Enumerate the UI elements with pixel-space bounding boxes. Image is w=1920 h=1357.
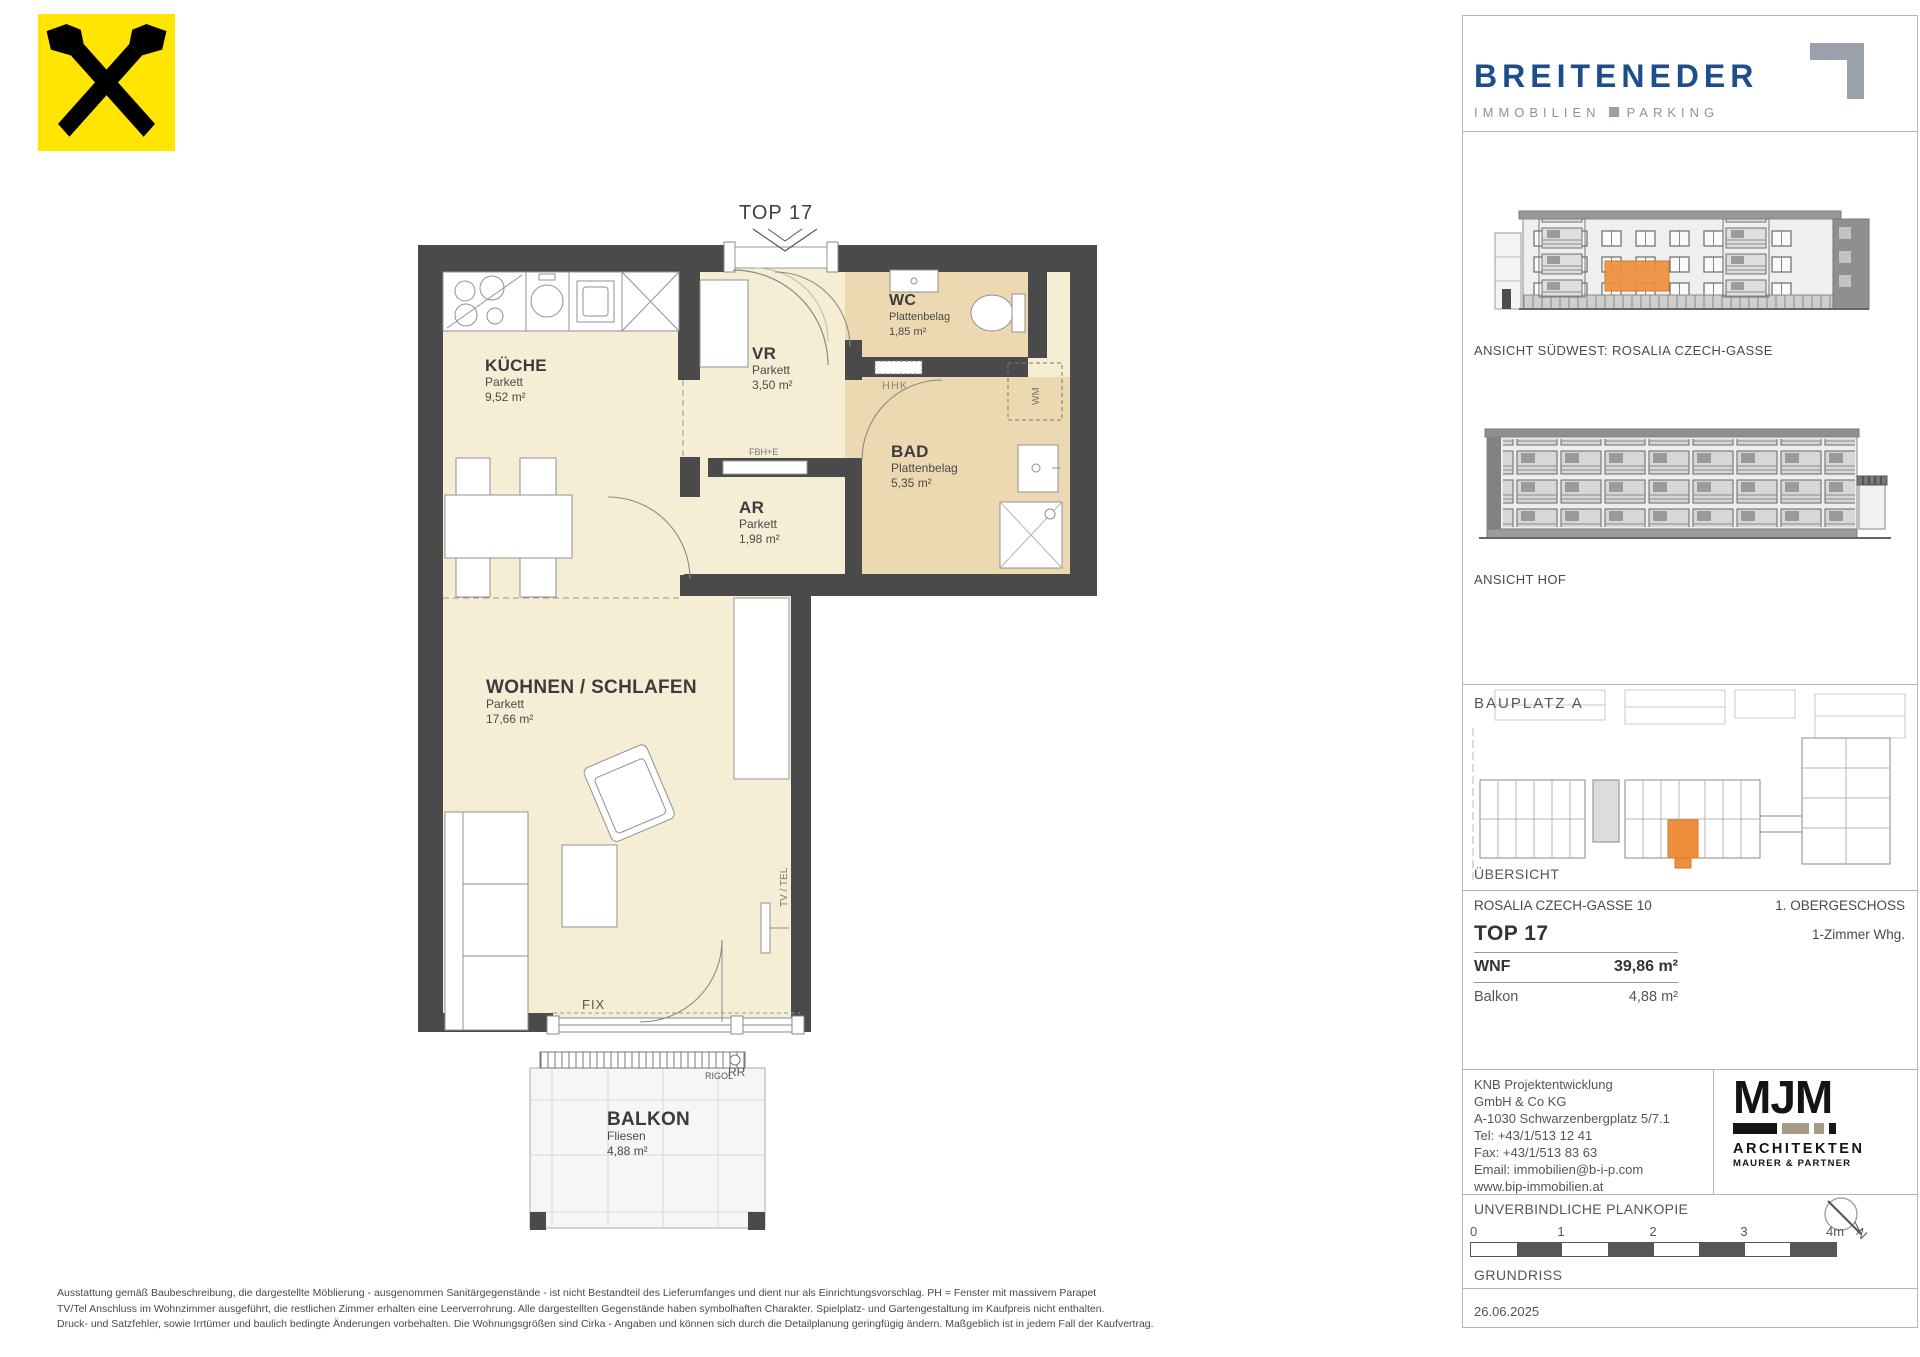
room-label-kueche: KÜCHE Parkett 9,52 m² bbox=[485, 356, 547, 405]
mjm-bar-icon bbox=[1733, 1123, 1893, 1134]
coffee-table bbox=[562, 845, 617, 927]
sofa bbox=[445, 812, 528, 1030]
mjm-bar-segment bbox=[1814, 1123, 1824, 1134]
wnf-value: 39,86 m² bbox=[1614, 958, 1678, 976]
wnf-label: WNF bbox=[1474, 958, 1510, 976]
wnf-row: WNF 39,86 m² bbox=[1474, 958, 1678, 976]
room-label-wohnen: WOHNEN / SCHLAFEN Parkett 17,66 m² bbox=[486, 678, 697, 727]
info-floor: 1. OBERGESCHOSS bbox=[1775, 898, 1905, 913]
disclaimer: Ausstattung gemäß Baubeschreibung, die d… bbox=[57, 1286, 1154, 1333]
disclaimer-line: TV/Tel Anschluss im Wohnzimmer ausgeführ… bbox=[57, 1302, 1154, 1318]
room-label-balkon: BALKON Fliesen 4,88 m² bbox=[607, 1110, 690, 1159]
dining-table bbox=[445, 458, 572, 597]
elevation-southwest-label: ANSICHT SÜDWEST: ROSALIA CZECH-GASSE bbox=[1474, 343, 1773, 358]
ar-door-arc bbox=[608, 497, 690, 579]
developer-line: GmbH & Co KG bbox=[1474, 1093, 1670, 1110]
uebersicht-label: ÜBERSICHT bbox=[1474, 866, 1559, 882]
drawing-type-label: GRUNDRISS bbox=[1474, 1267, 1563, 1283]
divider bbox=[1463, 1288, 1917, 1289]
developer-line: www.bip-immobilien.at bbox=[1474, 1178, 1670, 1195]
scale-tick: 2 bbox=[1638, 1224, 1668, 1239]
window-front bbox=[547, 940, 804, 1034]
elevation-hof-label: ANSICHT HOF bbox=[1474, 572, 1566, 587]
info-rule bbox=[1474, 952, 1678, 953]
scale-tick: 4m bbox=[1815, 1224, 1855, 1239]
bauplatz-label: BAUPLATZ A bbox=[1474, 695, 1584, 712]
balkon-value: 4,88 m² bbox=[1629, 989, 1678, 1005]
tv-board bbox=[761, 903, 789, 953]
elevation-southwest-drawing bbox=[1493, 199, 1873, 324]
room-label-bad: BAD Plattenbelag 5,35 m² bbox=[891, 442, 958, 491]
wardrobe bbox=[734, 598, 789, 779]
armchair bbox=[582, 743, 676, 843]
mjm-bar-segment bbox=[1782, 1123, 1809, 1134]
tagline-square-icon bbox=[1609, 107, 1619, 117]
fbhe-panel bbox=[723, 461, 807, 474]
developer-block: KNB Projektentwicklung GmbH & Co KG A-10… bbox=[1474, 1076, 1670, 1195]
balkon-row: Balkon 4,88 m² bbox=[1474, 989, 1678, 1005]
room-label-ar: AR Parkett 1,98 m² bbox=[739, 498, 780, 547]
wm-label: WM bbox=[1031, 387, 1042, 405]
info-unit: TOP 17 bbox=[1474, 922, 1549, 946]
breiteneder-bracket-icon-vertical bbox=[1847, 43, 1864, 99]
siteplan-drawing bbox=[1465, 688, 1915, 886]
mjm-architekten: ARCHITEKTEN bbox=[1733, 1141, 1893, 1157]
plan-date: 26.06.2025 bbox=[1474, 1304, 1539, 1319]
plankopie-label: UNVERBINDLICHE PLANKOPIE bbox=[1474, 1201, 1688, 1217]
scale-bar bbox=[1470, 1242, 1837, 1257]
developer-line: KNB Projektentwicklung bbox=[1474, 1076, 1670, 1093]
mjm-logo: MJM ARCHITEKTEN MAURER & PARTNER bbox=[1733, 1074, 1893, 1169]
divider bbox=[1463, 131, 1917, 132]
mjm-bar-segment bbox=[1733, 1123, 1777, 1134]
vr-closet bbox=[700, 280, 748, 367]
divider-vertical bbox=[1713, 1069, 1714, 1194]
sidebar: BREITENEDER IMMOBILIENPARKING bbox=[1462, 15, 1918, 1328]
divider bbox=[1463, 684, 1917, 685]
room-boundaries bbox=[443, 380, 683, 598]
tagline-parking: PARKING bbox=[1627, 105, 1720, 120]
developer-line: A-1030 Schwarzenbergplatz 5/7.1 bbox=[1474, 1110, 1670, 1127]
hhk-label: HHK bbox=[882, 380, 908, 392]
breiteneder-wordmark: BREITENEDER bbox=[1474, 58, 1758, 95]
plan-unit-label: TOP 17 bbox=[739, 202, 813, 225]
elevation-hof-drawing bbox=[1471, 419, 1895, 564]
scale-tick: 0 bbox=[1470, 1224, 1477, 1239]
balkon-label: Balkon bbox=[1474, 989, 1518, 1005]
mjm-partner: MAURER & PARTNER bbox=[1733, 1158, 1893, 1169]
disclaimer-line: Ausstattung gemäß Baubeschreibung, die d… bbox=[57, 1286, 1154, 1302]
breiteneder-tagline: IMMOBILIENPARKING bbox=[1474, 105, 1719, 120]
info-rule bbox=[1474, 982, 1678, 983]
scale-tick: 3 bbox=[1729, 1224, 1759, 1239]
divider bbox=[1463, 890, 1917, 891]
fix-label: FIX bbox=[582, 997, 605, 1012]
raiffeisen-gable-cross-icon bbox=[38, 14, 175, 151]
room-label-wc: WC Plattenbelag 1,85 m² bbox=[889, 291, 950, 340]
rr-label: RR bbox=[728, 1065, 745, 1079]
scale-tick: 1 bbox=[1546, 1224, 1576, 1239]
raiffeisen-logo bbox=[38, 14, 175, 151]
fbhe-label: FBH+E bbox=[749, 447, 778, 457]
developer-line: Tel: +43/1/513 12 41 bbox=[1474, 1127, 1670, 1144]
kitchen-counter bbox=[443, 272, 679, 331]
info-unit-type: 1-Zimmer Whg. bbox=[1812, 927, 1905, 942]
room-label-vr: VR Parkett 3,50 m² bbox=[752, 344, 793, 393]
disclaimer-line: Druck- und Satzfehler, sowie Irrtümer un… bbox=[57, 1317, 1154, 1333]
mjm-wordmark: MJM bbox=[1733, 1074, 1893, 1120]
info-address: ROSALIA CZECH-GASSE 10 bbox=[1474, 898, 1652, 913]
tv-tel-label: TV / TEL bbox=[779, 868, 790, 907]
developer-line: Fax: +43/1/513 83 63 bbox=[1474, 1144, 1670, 1161]
divider bbox=[1463, 1069, 1917, 1070]
mjm-bar-segment bbox=[1829, 1123, 1836, 1134]
developer-line: Email: immobilien@b-i-p.com bbox=[1474, 1161, 1670, 1178]
tagline-immobilien: IMMOBILIEN bbox=[1474, 105, 1601, 120]
